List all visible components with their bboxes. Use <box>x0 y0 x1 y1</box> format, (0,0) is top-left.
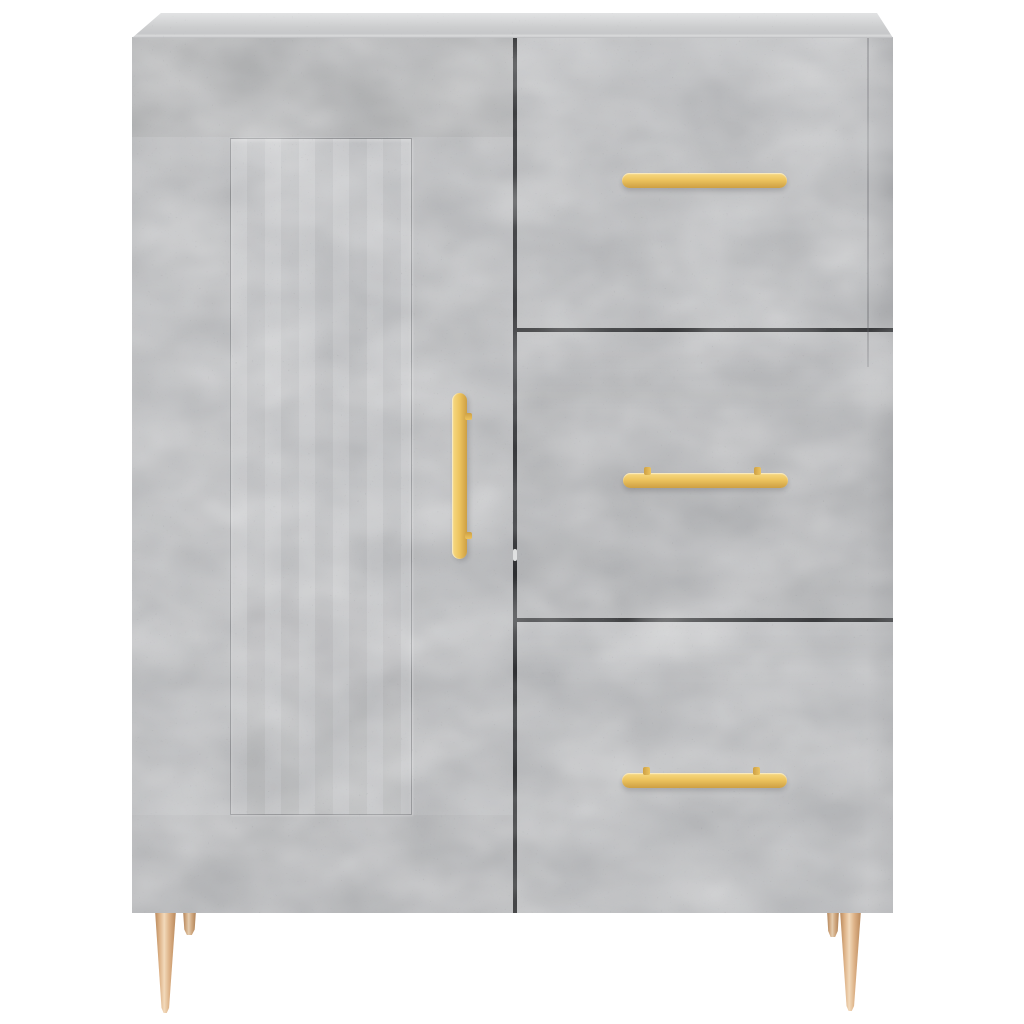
leg-back-left <box>183 910 196 935</box>
leg-front-left <box>155 910 176 1013</box>
drawer-top-handle <box>622 173 787 188</box>
product-photo-canvas <box>0 0 1024 1024</box>
cabinet-top-surface <box>132 13 893 38</box>
leg-front-right <box>840 910 861 1011</box>
cabinet-body <box>132 37 893 913</box>
right-side-shading <box>867 37 893 913</box>
door-recessed-panel <box>230 138 412 815</box>
door-handle <box>452 393 467 559</box>
drawer-middle-handle <box>623 473 788 488</box>
top-texture <box>132 13 893 38</box>
door-drawer-divider-gap <box>513 37 517 913</box>
drawer-bottom <box>517 622 893 914</box>
drawer-bottom-handle <box>622 773 787 788</box>
divider-highlight-notch <box>513 549 517 561</box>
leg-back-right <box>827 910 839 937</box>
